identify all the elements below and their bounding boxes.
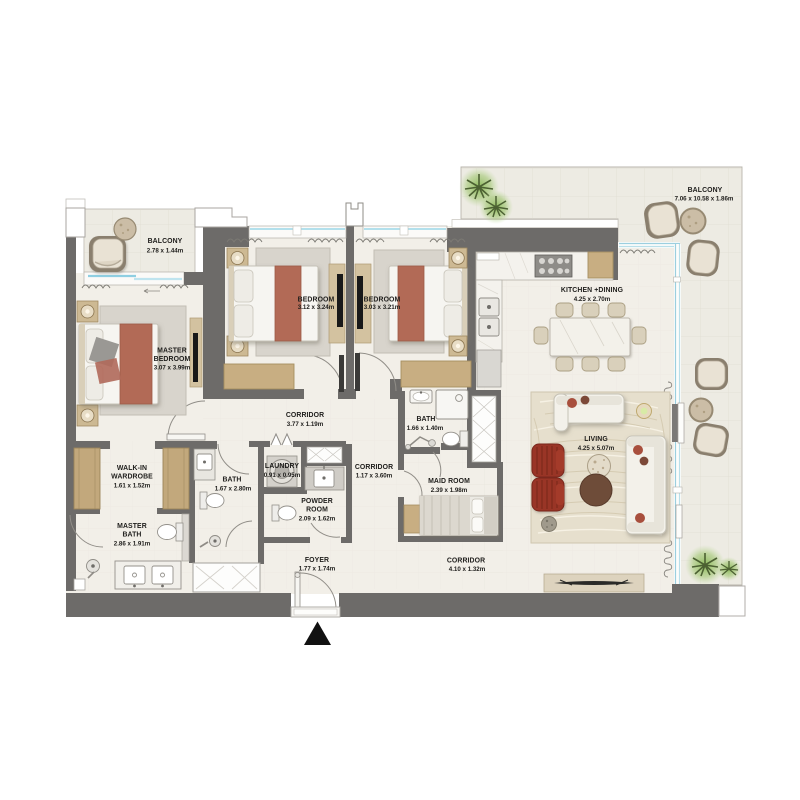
svg-text:7.06 x 10.58 x 1.86m: 7.06 x 10.58 x 1.86m — [675, 196, 734, 203]
svg-text:MASTER: MASTER — [117, 523, 147, 530]
svg-text:LIVING: LIVING — [584, 436, 608, 443]
svg-text:3.07 x 3.99m: 3.07 x 3.99m — [154, 365, 191, 372]
svg-text:3.03 x 3.21m: 3.03 x 3.21m — [364, 304, 401, 311]
svg-text:2.09 x 1.62m: 2.09 x 1.62m — [299, 516, 336, 523]
svg-text:BATH: BATH — [416, 416, 435, 423]
svg-text:BATH: BATH — [122, 532, 141, 539]
svg-text:3.77 x 1.19m: 3.77 x 1.19m — [287, 421, 324, 428]
svg-text:LAUNDRY: LAUNDRY — [265, 463, 299, 470]
svg-text:ROOM: ROOM — [306, 507, 328, 514]
svg-text:1.66 x 1.40m: 1.66 x 1.40m — [407, 425, 444, 432]
svg-text:MASTER: MASTER — [157, 348, 187, 355]
svg-text:KITCHEN +DINING: KITCHEN +DINING — [561, 287, 623, 294]
svg-text:CORRIDOR: CORRIDOR — [286, 412, 324, 419]
svg-text:4.25 x 5.07m: 4.25 x 5.07m — [578, 445, 615, 452]
svg-text:CORRIDOR: CORRIDOR — [447, 558, 485, 565]
svg-text:BEDROOM: BEDROOM — [298, 297, 335, 304]
svg-text:1.77 x 1.74m: 1.77 x 1.74m — [299, 566, 336, 573]
svg-text:2.78 x 1.44m: 2.78 x 1.44m — [147, 248, 184, 255]
svg-text:4.10 x 1.32m: 4.10 x 1.32m — [449, 566, 486, 573]
svg-text:BATH: BATH — [222, 477, 241, 484]
svg-text:MAID ROOM: MAID ROOM — [428, 478, 470, 485]
svg-text:WALK-IN: WALK-IN — [117, 465, 147, 472]
svg-text:CORRIDOR: CORRIDOR — [355, 464, 393, 471]
svg-text:BALCONY: BALCONY — [688, 187, 723, 194]
svg-text:POWDER: POWDER — [301, 498, 333, 505]
svg-text:BEDROOM: BEDROOM — [364, 297, 401, 304]
svg-text:1.67 x 2.80m: 1.67 x 2.80m — [215, 486, 252, 493]
svg-text:BEDROOM: BEDROOM — [154, 356, 191, 363]
svg-text:2.86 x 1.91m: 2.86 x 1.91m — [114, 541, 151, 548]
svg-text:0.91 x 0.95m: 0.91 x 0.95m — [264, 472, 301, 479]
svg-text:3.12 x 3.24m: 3.12 x 3.24m — [298, 304, 335, 311]
svg-text:2.39 x 1.98m: 2.39 x 1.98m — [431, 487, 468, 494]
svg-text:4.25 x 2.70m: 4.25 x 2.70m — [574, 296, 611, 303]
svg-text:WARDROBE: WARDROBE — [111, 474, 153, 481]
svg-text:BALCONY: BALCONY — [148, 238, 183, 245]
svg-text:1.61 x 1.52m: 1.61 x 1.52m — [114, 483, 151, 490]
svg-text:1.17 x 3.60m: 1.17 x 3.60m — [356, 473, 393, 480]
svg-text:FOYER: FOYER — [305, 557, 329, 564]
